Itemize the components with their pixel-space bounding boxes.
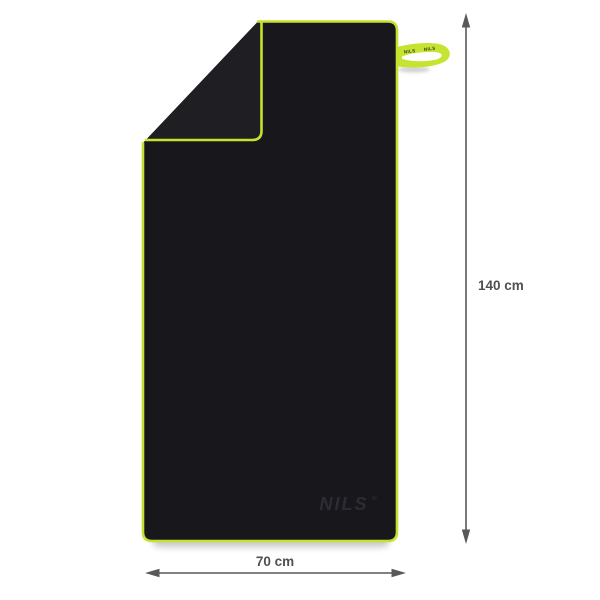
folded-corner [143, 22, 261, 144]
arrow-left-icon [145, 569, 160, 577]
width-dimension: 70 cm [145, 554, 406, 577]
product-image: NILS NILS NILS ® 140 cm 70 cm [0, 0, 600, 600]
height-dimension: 140 cm [462, 13, 524, 544]
registered-mark-icon: ® [372, 494, 377, 502]
towel-body [143, 22, 397, 542]
towel-dimension-diagram: NILS NILS NILS ® 140 cm 70 cm [0, 0, 600, 600]
width-label: 70 cm [256, 554, 294, 569]
arrow-right-icon [392, 569, 407, 577]
brand-logo: NILS [319, 494, 368, 514]
hanging-loop: NILS NILS [397, 43, 450, 72]
arrow-down-icon [462, 530, 470, 545]
arrow-up-icon [462, 13, 470, 28]
height-label: 140 cm [478, 278, 524, 293]
